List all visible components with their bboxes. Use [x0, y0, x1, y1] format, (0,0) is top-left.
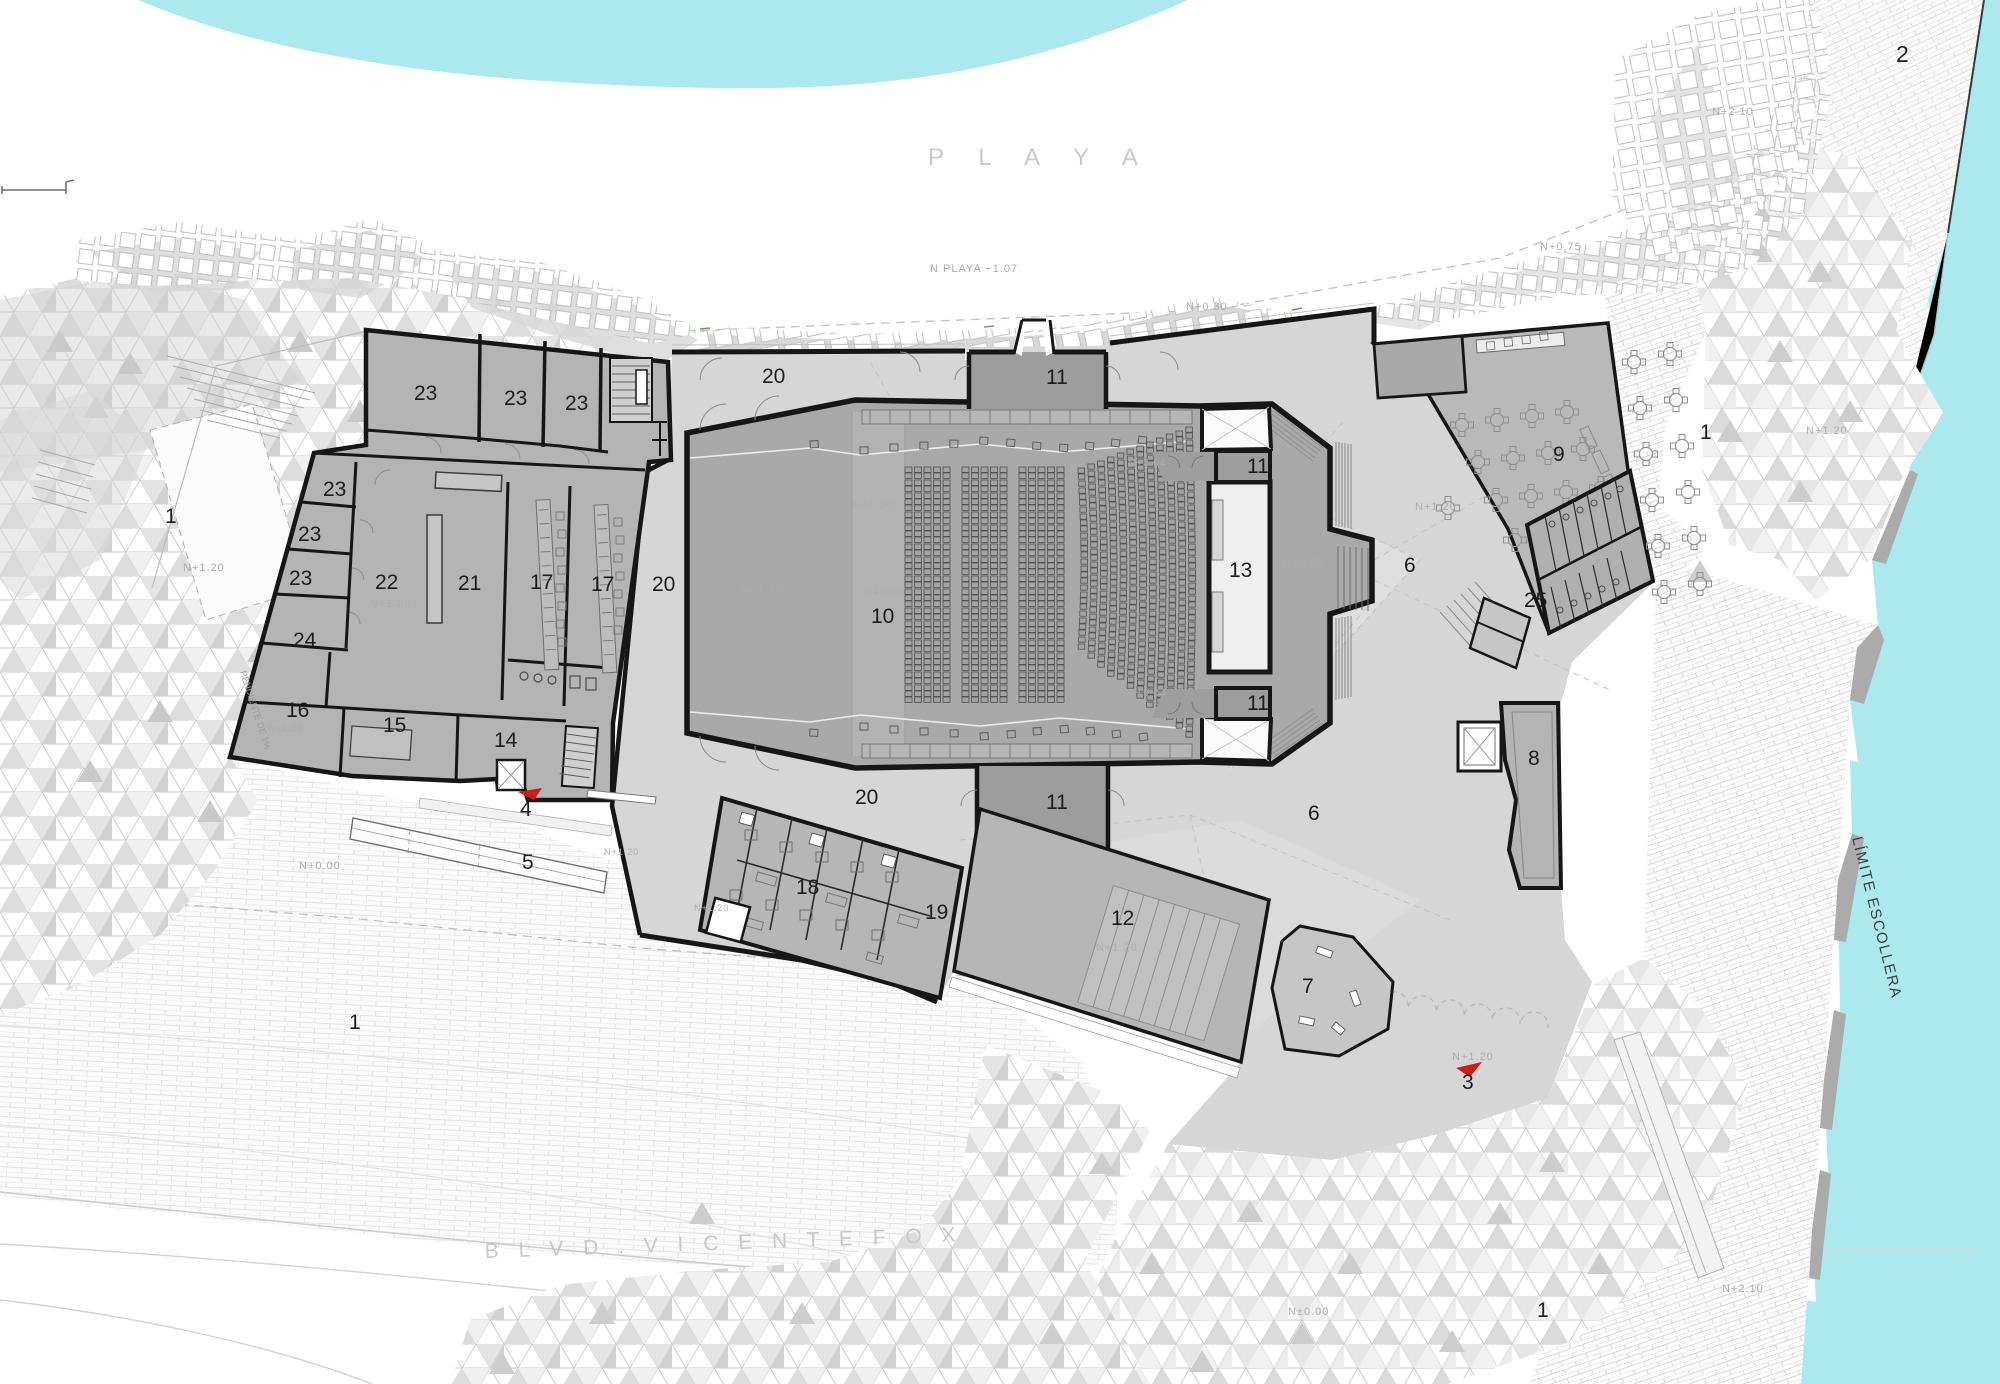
svg-text:23: 23	[565, 392, 588, 415]
svg-text:N±0.00: N±0.00	[1288, 1306, 1329, 1318]
svg-text:N+1.20: N+1.20	[1028, 426, 1067, 437]
svg-text:1: 1	[1537, 1299, 1549, 1322]
svg-text:N+1.20: N+1.20	[183, 562, 225, 574]
svg-text:13: 13	[1229, 559, 1252, 582]
svg-text:23: 23	[298, 523, 321, 546]
svg-text:23: 23	[414, 382, 437, 405]
svg-text:21: 21	[458, 572, 481, 595]
svg-text:23: 23	[323, 478, 346, 501]
svg-text:N+1.20: N+1.20	[268, 723, 303, 733]
svg-text:N+1.20: N+1.20	[1452, 1051, 1494, 1063]
svg-text:8: 8	[1528, 747, 1540, 770]
svg-text:N+0.03: N+0.03	[864, 587, 906, 599]
svg-text:N+0.00: N+0.00	[299, 860, 341, 872]
svg-text:N+3.04: N+3.04	[1128, 458, 1167, 469]
svg-text:15: 15	[383, 714, 406, 737]
svg-text:19: 19	[925, 901, 948, 924]
svg-text:20: 20	[855, 786, 878, 809]
svg-text:N+2.10: N+2.10	[1712, 106, 1754, 118]
svg-text:18: 18	[796, 876, 819, 899]
svg-text:6: 6	[1308, 802, 1320, 825]
svg-text:1: 1	[349, 1011, 361, 1034]
svg-text:17: 17	[530, 571, 553, 594]
svg-text:N+0.75: N+0.75	[1540, 241, 1582, 253]
svg-text:N+1.20: N+1.20	[604, 847, 639, 857]
svg-text:N PLAYA −1.07: N PLAYA −1.07	[930, 263, 1018, 275]
svg-text:N+0.30: N+0.30	[1186, 301, 1228, 313]
svg-text:24: 24	[293, 629, 317, 652]
svg-text:10: 10	[871, 605, 894, 628]
svg-text:16: 16	[286, 699, 309, 722]
svg-text:11: 11	[1247, 692, 1269, 715]
svg-text:2: 2	[1896, 41, 1909, 67]
svg-text:23: 23	[289, 567, 312, 590]
svg-text:N+1.20: N+1.20	[1096, 942, 1138, 954]
svg-text:3: 3	[1462, 1071, 1474, 1094]
svg-text:12: 12	[1111, 907, 1134, 930]
svg-text:25: 25	[1524, 589, 1547, 612]
svg-text:5: 5	[522, 851, 534, 874]
svg-text:N+2.10: N+2.10	[1722, 1283, 1764, 1295]
svg-text:20: 20	[652, 573, 675, 596]
svg-text:23: 23	[504, 387, 527, 410]
svg-text:22: 22	[375, 571, 398, 594]
svg-text:P L A Y A: P L A Y A	[928, 144, 1152, 171]
svg-text:1: 1	[165, 505, 177, 528]
svg-text:N+3.04: N+3.04	[1128, 688, 1167, 699]
svg-text:7: 7	[1302, 975, 1314, 998]
svg-text:4: 4	[520, 798, 532, 821]
svg-text:N+1.20: N+1.20	[741, 585, 783, 597]
svg-text:N+1.20: N+1.20	[1074, 732, 1113, 743]
svg-text:20: 20	[762, 365, 785, 388]
svg-text:N+1.20: N+1.20	[1806, 425, 1848, 437]
svg-text:6: 6	[1404, 554, 1416, 577]
svg-text:N+1.20: N+1.20	[694, 903, 729, 913]
svg-text:11: 11	[1247, 455, 1269, 478]
svg-text:N+1.20: N+1.20	[1415, 501, 1457, 513]
svg-text:17: 17	[591, 573, 614, 596]
svg-text:9: 9	[1553, 443, 1565, 466]
svg-text:11: 11	[1046, 791, 1068, 814]
svg-text:1: 1	[1700, 421, 1712, 444]
svg-text:N+1.20: N+1.20	[852, 500, 894, 512]
svg-text:N+3.00: N+3.00	[1283, 557, 1325, 569]
svg-text:N+1.20: N+1.20	[370, 598, 412, 610]
svg-text:14: 14	[494, 729, 518, 752]
svg-text:11: 11	[1046, 366, 1068, 389]
